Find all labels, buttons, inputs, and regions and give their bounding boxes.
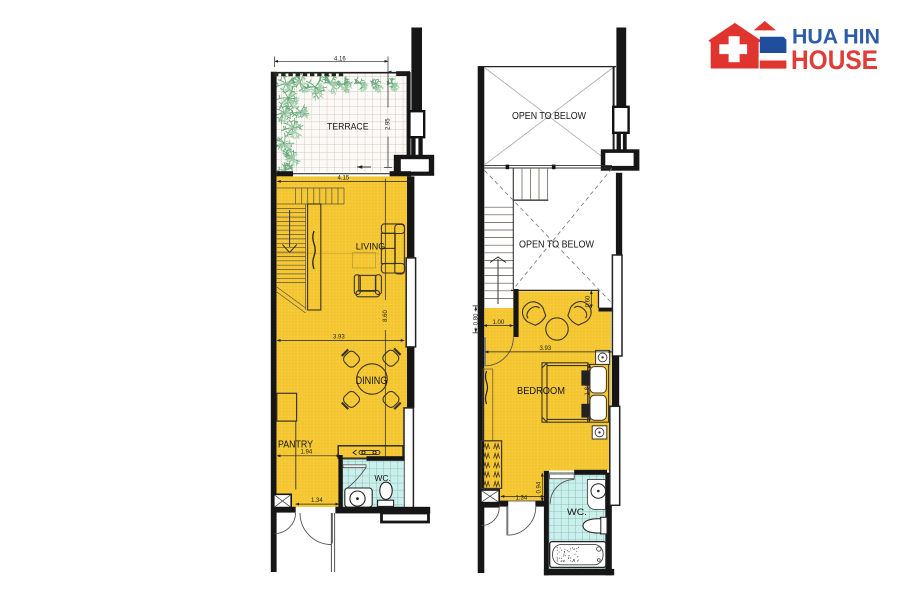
svg-text:0.60: 0.60 xyxy=(585,295,591,307)
svg-text:1.00: 1.00 xyxy=(493,320,505,326)
svg-text:4.16: 4.16 xyxy=(334,56,346,62)
svg-text:3.93: 3.93 xyxy=(333,335,345,341)
svg-text:1.84: 1.84 xyxy=(585,383,591,395)
svg-text:0.80: 0.80 xyxy=(474,313,480,325)
svg-text:1.34: 1.34 xyxy=(516,496,528,502)
svg-text:TERRACE: TERRACE xyxy=(327,121,369,131)
svg-text:LIVING: LIVING xyxy=(356,242,386,253)
svg-text:8.60: 8.60 xyxy=(383,310,389,322)
svg-text:3.93: 3.93 xyxy=(540,346,552,352)
svg-text:DINING: DINING xyxy=(356,375,388,387)
svg-text:OPEN TO BELOW: OPEN TO BELOW xyxy=(519,240,594,251)
svg-text:0.94: 0.94 xyxy=(537,481,543,493)
svg-text:OPEN TO BELOW: OPEN TO BELOW xyxy=(512,111,586,122)
svg-text:4.15: 4.15 xyxy=(338,175,350,181)
svg-text:1.94: 1.94 xyxy=(301,450,313,456)
svg-text:BEDROOM: BEDROOM xyxy=(517,386,565,397)
svg-text:HOUSE: HOUSE xyxy=(791,45,878,75)
svg-text:1.34: 1.34 xyxy=(311,498,323,504)
svg-text:WC.: WC. xyxy=(567,506,587,517)
svg-text:WC.: WC. xyxy=(374,474,391,483)
svg-text:2.95: 2.95 xyxy=(386,118,392,130)
